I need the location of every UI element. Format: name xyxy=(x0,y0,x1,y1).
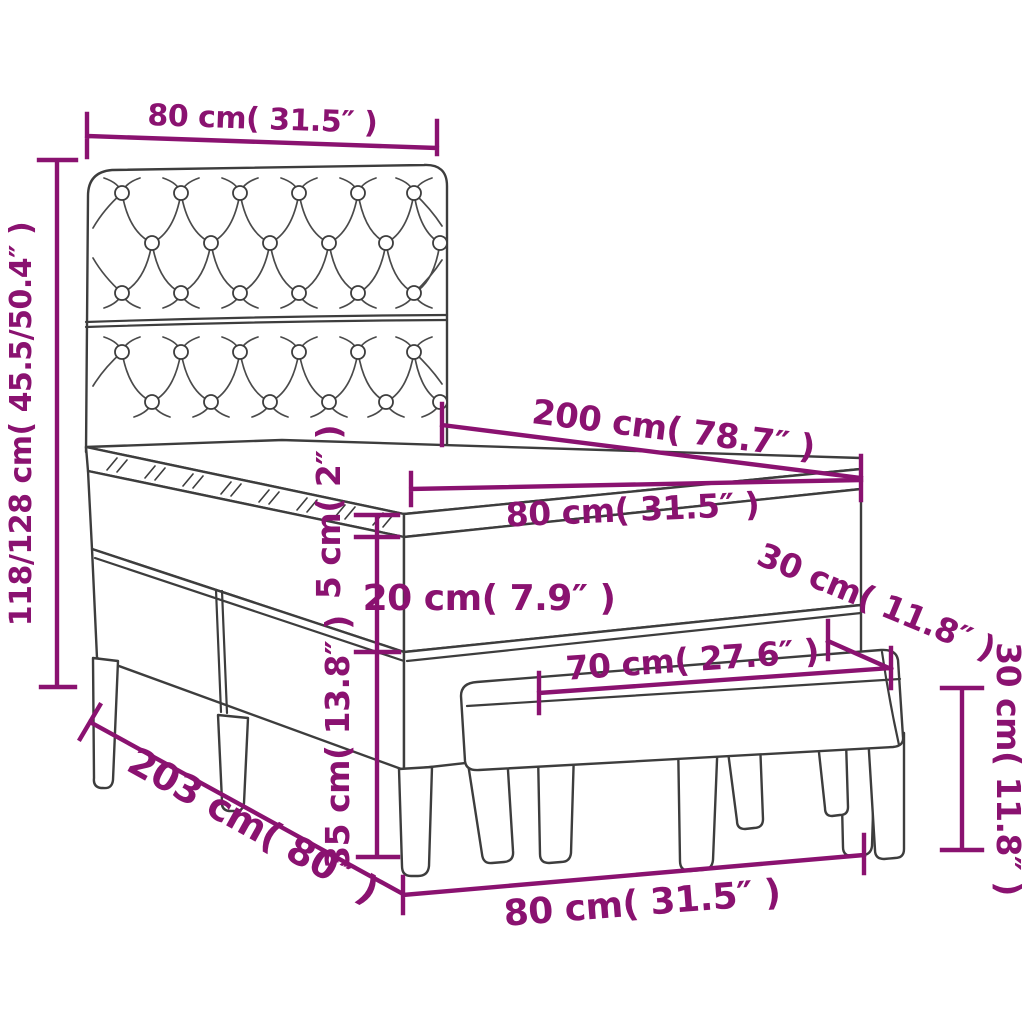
dim-bench-height: 30 cm( 11.8″ ) xyxy=(942,642,1024,896)
diagram-canvas: 80 cm( 31.5″ ) 118/128 cm( 45.5/50.4″ ) … xyxy=(0,0,1024,1024)
dim-total-height-label: 118/128 cm( 45.5/50.4″ ) xyxy=(4,222,39,626)
bed-dimension-diagram: 80 cm( 31.5″ ) 118/128 cm( 45.5/50.4″ ) … xyxy=(0,0,1024,1024)
dim-headboard-width: 80 cm( 31.5″ ) xyxy=(87,98,437,157)
dim-base-height-label: 35 cm( 13.8″ ) xyxy=(318,615,357,869)
dim-total-height: 118/128 cm( 45.5/50.4″ ) xyxy=(4,160,76,687)
dim-floor-width: 80 cm( 31.5″ ) xyxy=(403,835,864,935)
dim-headboard-width-label: 80 cm( 31.5″ ) xyxy=(147,98,378,141)
dim-mattress-thickness-label: 20 cm( 7.9″ ) xyxy=(363,578,616,619)
headboard xyxy=(86,165,447,452)
dim-bench-height-label: 30 cm( 11.8″ ) xyxy=(989,642,1024,896)
dim-topper-thickness-label: 5 cm( 2″ ) xyxy=(309,425,348,599)
